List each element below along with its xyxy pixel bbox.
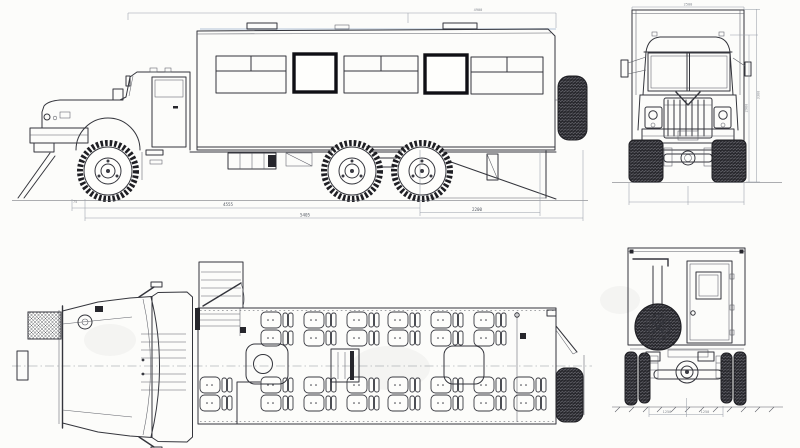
rear-wheel-1 xyxy=(324,143,380,199)
window-2 xyxy=(344,56,418,93)
mirror-arm-top xyxy=(139,287,154,297)
winch-drum xyxy=(17,351,28,380)
dim-label-rear-section: 2200 xyxy=(472,207,483,212)
front-wheel xyxy=(80,143,136,199)
rear-spare-tire xyxy=(633,259,681,350)
door-handle xyxy=(173,106,178,109)
window-1 xyxy=(216,56,286,93)
rear-track-dimensions: 1250 1250 xyxy=(649,398,723,417)
seat-unit-top-3 xyxy=(347,312,379,346)
dim-label-track-left: 1250 xyxy=(663,410,672,414)
front-entry-steps xyxy=(195,262,246,336)
seat-unit-top-4 xyxy=(388,312,420,346)
front-wheel-right xyxy=(712,140,746,182)
seat-unit-bottom-8 xyxy=(514,377,546,411)
side-view: 4900 xyxy=(12,8,588,221)
front-wheel-left xyxy=(629,140,663,182)
dim-label-width: 2500 xyxy=(684,3,693,7)
front-cab xyxy=(621,32,751,149)
spare-tire-side xyxy=(555,76,587,140)
entry-door-open xyxy=(203,283,241,306)
seat-unit-bottom-2 xyxy=(261,377,293,411)
plan-view xyxy=(12,262,592,448)
dim-note-left: 75 xyxy=(73,200,77,204)
seat-unit-top-6 xyxy=(474,312,506,346)
side-windows xyxy=(216,54,543,94)
headlight xyxy=(44,114,50,120)
cab-roof-plan xyxy=(152,292,193,442)
headlight-left xyxy=(645,107,662,128)
rear-door-window xyxy=(696,272,721,299)
engine-hatch-lines xyxy=(141,334,186,390)
dim-label-track-right: 1250 xyxy=(701,410,710,414)
blueprint-canvas: 4900 xyxy=(0,0,800,448)
plan-cab xyxy=(17,282,193,448)
sliding-window-1 xyxy=(294,54,336,92)
rear-view: 1250 1250 xyxy=(612,248,783,417)
mirror-left xyxy=(621,57,646,77)
front-wheels xyxy=(629,140,746,182)
window-3 xyxy=(471,57,543,94)
winch-box xyxy=(28,312,61,339)
dim-label-roof-length: 4900 xyxy=(474,8,483,12)
mirror-arm-bottom xyxy=(139,437,154,447)
front-mudflap xyxy=(18,153,55,198)
dim-label-total-length: 5405 xyxy=(300,212,311,217)
seat-unit-bottom-5 xyxy=(388,377,420,411)
cab-door xyxy=(152,77,186,147)
seat-unit-top-2 xyxy=(304,312,336,346)
rear-door xyxy=(687,261,734,343)
rear-door-handle xyxy=(691,311,695,315)
sliding-window-2 xyxy=(425,55,467,93)
truck-blueprint: 4900 xyxy=(0,0,800,448)
front-axle xyxy=(664,148,712,166)
ground-line-rear xyxy=(612,407,783,412)
seat-unit-top-5 xyxy=(431,312,463,346)
mirror-right xyxy=(733,58,751,76)
air-intake xyxy=(113,89,123,100)
dim-label-cab-height: 2980 xyxy=(745,104,749,113)
spare-tire-plan xyxy=(556,368,583,422)
plan-rear xyxy=(556,326,584,422)
van-body-side xyxy=(197,23,556,150)
seat-unit-bottom-1 xyxy=(200,377,232,411)
rear-wheel-2 xyxy=(394,143,450,199)
dim-label-total-height: 3300 xyxy=(757,91,761,100)
rear-door-open-plan xyxy=(556,326,577,352)
cab-door-window xyxy=(155,80,183,97)
seat-unit-bottom-7 xyxy=(474,377,506,411)
front-width-dimension: 2500 xyxy=(632,3,744,13)
headlight-right xyxy=(714,107,731,128)
dim-label-front-section: 4555 xyxy=(223,202,234,207)
seat-unit-top-1 xyxy=(261,312,293,346)
rear-chassis xyxy=(646,350,726,383)
winch xyxy=(34,143,54,152)
front-view: 2500 xyxy=(612,3,782,206)
